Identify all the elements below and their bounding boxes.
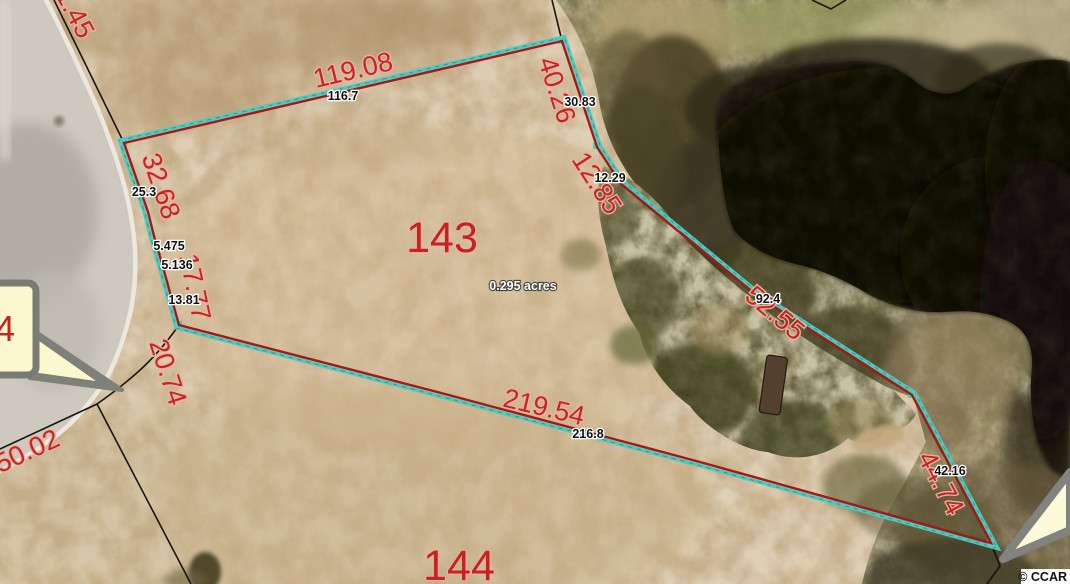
- svg-text:42.16: 42.16: [934, 464, 965, 478]
- svg-text:0.295 acres: 0.295 acres: [489, 279, 556, 293]
- svg-text:116.7: 116.7: [328, 89, 359, 103]
- svg-text:25.3: 25.3: [132, 185, 156, 199]
- svg-text:5.136: 5.136: [161, 258, 192, 272]
- svg-text:92.4: 92.4: [756, 292, 780, 306]
- svg-text:5.475: 5.475: [153, 239, 184, 253]
- svg-text:© CCAR: © CCAR: [1018, 570, 1067, 584]
- svg-text:4: 4: [0, 308, 15, 349]
- svg-text:216.8: 216.8: [572, 427, 603, 441]
- svg-text:30.83: 30.83: [564, 95, 595, 109]
- svg-text:13.81: 13.81: [168, 293, 199, 307]
- svg-text:12.29: 12.29: [594, 171, 625, 185]
- svg-text:143: 143: [406, 214, 478, 262]
- svg-text:144: 144: [423, 542, 495, 584]
